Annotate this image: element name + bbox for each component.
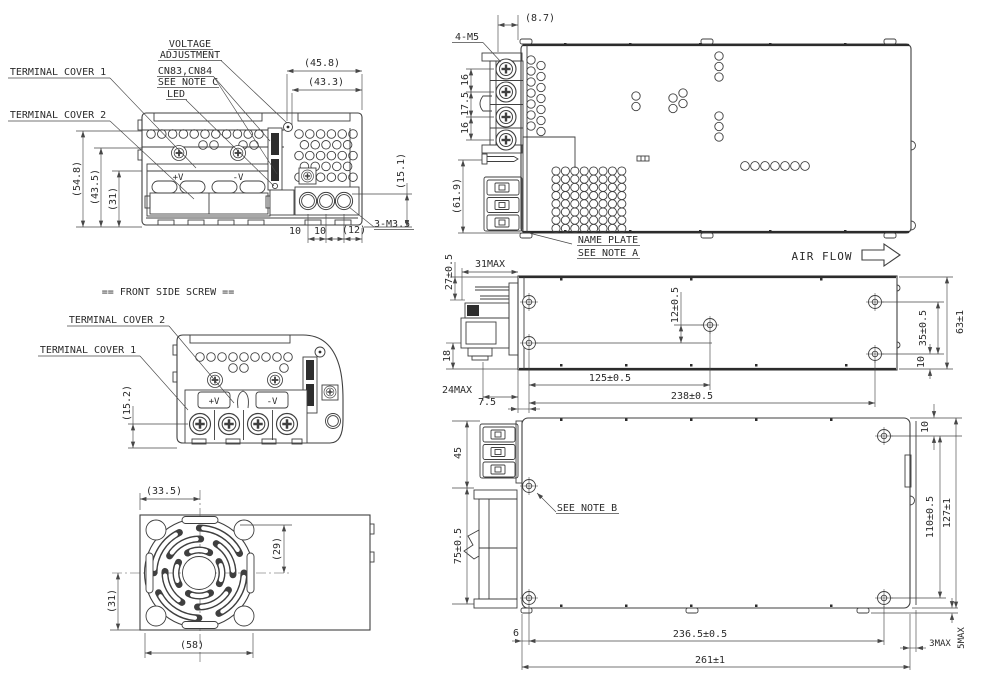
svg-text:NAME PLATE: NAME PLATE [578, 235, 638, 246]
svg-text:(15.2): (15.2) [122, 385, 133, 421]
fan-mount-hole-tr [234, 520, 254, 540]
output-screw-4 [496, 130, 516, 150]
dim-bottom-right-heights: 10 110±0.5 127±1 [890, 404, 962, 608]
dim-fan-center-y: (31) [107, 573, 140, 630]
front-vent-holes-top [147, 130, 264, 139]
svg-text:10: 10 [920, 421, 931, 433]
side-mount-hole-tr [866, 293, 884, 311]
svg-text:CN83,CN84: CN83,CN84 [158, 66, 212, 77]
dim-front-terminal-height: (15.1) [352, 153, 412, 227]
dim-top-terminal-offset: (8.7) [498, 13, 555, 52]
svg-text:3-M3.5: 3-M3.5 [374, 219, 410, 230]
svg-text:(43.5): (43.5) [90, 169, 101, 205]
terminal-screw-4 [277, 414, 298, 435]
svg-text:(54.8): (54.8) [72, 161, 83, 197]
cn83-connector [271, 133, 279, 155]
ground-screw [302, 170, 314, 182]
bottom-din-bracket [464, 490, 517, 608]
screw-view-negative-label: -V [267, 397, 278, 407]
side-mount-hole-center [701, 316, 719, 334]
power-supply-outline-drawing: +V -V VOLTAGE ADJUSTMENT CN83,CN84 SEE N… [0, 0, 1000, 674]
svg-text:16: 16 [460, 74, 471, 86]
top-edge-rivets [564, 43, 847, 233]
screw-view-cover-screw-right [268, 373, 283, 388]
svg-text:(33.5): (33.5) [146, 486, 182, 497]
top-output-terminal-block [480, 53, 523, 153]
svg-text:10: 10 [916, 356, 927, 368]
side-mount-hole-tl [520, 293, 538, 311]
side-mount-hole-bl [520, 334, 538, 352]
fan-view: (33.5) (29) (31) (58) [107, 486, 374, 662]
dim-bottom-left-heights: 45 75±0.5 [452, 421, 480, 604]
front-view: +V -V VOLTAGE ADJUSTMENT CN83,CN84 SEE N… [8, 39, 414, 243]
output-terminal-2 [317, 192, 334, 209]
fan-mount-hole-br [234, 606, 254, 626]
dim-side-connector-depth: 31MAX [462, 259, 518, 300]
bottom-ac-inlet-connector [480, 421, 522, 483]
name-plate-vent-grid [552, 167, 626, 233]
screw-view-ground-screw [324, 386, 336, 398]
dim-front-width-outer: (45.8) [287, 58, 362, 121]
svg-text:110±0.5: 110±0.5 [925, 496, 936, 538]
fan-hub [183, 557, 216, 590]
top-ac-inlet-connector [484, 177, 522, 231]
svg-text:VOLTAGE: VOLTAGE [169, 39, 211, 50]
terminal-screw-2 [219, 414, 240, 435]
output-terminal-3 [335, 192, 352, 209]
dim-side-hole-pitch-mid: 125±0.5 [529, 332, 710, 390]
svg-text:45: 45 [453, 447, 464, 459]
bottom-feet [521, 608, 869, 613]
dim-side-hole-offset: 12±0.5 [536, 287, 712, 343]
svg-text:TERMINAL COVER 1: TERMINAL COVER 1 [10, 67, 106, 78]
top-left-vent-column-b [537, 61, 545, 135]
svg-text:(45.8): (45.8) [304, 58, 340, 69]
svg-text:(43.3): (43.3) [308, 77, 344, 88]
dim-bottom-side-clearance: 3MAX [900, 610, 951, 652]
top-left-vent-column-a [527, 56, 535, 130]
front-vent-holes-row2 [199, 141, 259, 150]
screw-view-title: == FRONT SIDE SCREW == [102, 287, 234, 298]
svg-text:125±0.5: 125±0.5 [589, 373, 631, 384]
svg-text:127±1: 127±1 [942, 498, 953, 528]
dim-fan-width: (58) [145, 633, 253, 658]
svg-text:5MAX: 5MAX [957, 627, 967, 649]
svg-text:(31): (31) [107, 589, 118, 613]
cover-screw-right [231, 146, 246, 161]
svg-text:24MAX: 24MAX [442, 385, 472, 396]
output-screw-2 [496, 82, 516, 102]
svg-text:18: 18 [442, 350, 453, 362]
svg-text:31MAX: 31MAX [475, 259, 505, 270]
screw-view-vent-holes [196, 353, 293, 362]
svg-text:TERMINAL COVER 2: TERMINAL COVER 2 [69, 315, 165, 326]
output-terminal-1 [299, 192, 316, 209]
top-small-slot [637, 156, 649, 161]
svg-text:(31): (31) [108, 187, 119, 211]
dim-fan-center-x: (33.5) [140, 486, 200, 510]
air-flow-label: AIR FLOW [792, 250, 853, 263]
dim-bottom-widths: 6 236.5±0.5 261±1 [512, 606, 910, 670]
dim-front-width-inner: (43.3) [292, 77, 362, 125]
svg-text:LED: LED [167, 89, 185, 100]
svg-text:17.5: 17.5 [460, 92, 471, 116]
svg-text:SEE NOTE C: SEE NOTE C [158, 77, 218, 88]
fan-mount-hole-tl [146, 520, 166, 540]
svg-text:238±0.5: 238±0.5 [671, 391, 713, 402]
air-flow-arrow-icon [862, 244, 900, 266]
svg-text:63±1: 63±1 [955, 310, 966, 334]
technical-drawing-page: +V -V VOLTAGE ADJUSTMENT CN83,CN84 SEE N… [0, 0, 1000, 674]
screw-view-vent-holes-row2 [229, 364, 289, 373]
dim-side-front-offset: 7.5 [478, 352, 540, 413]
svg-text:3MAX: 3MAX [929, 639, 951, 649]
output-screw-1 [496, 59, 516, 79]
side-front-connectors [461, 283, 518, 360]
svg-text:(8.7): (8.7) [525, 13, 555, 24]
svg-text:(29): (29) [272, 537, 283, 561]
svg-text:12±0.5: 12±0.5 [670, 287, 681, 323]
fan-mount-hole-bl [146, 606, 166, 626]
top-body-outline [521, 44, 911, 233]
front-feet-slots [158, 220, 351, 225]
svg-text:ADJUSTMENT: ADJUSTMENT [160, 50, 220, 61]
front-side-screw-view: == FRONT SIDE SCREW == +V -V TERMINAL CO… [38, 287, 343, 448]
svg-text:236.5±0.5: 236.5±0.5 [673, 629, 727, 640]
side-view: 27±0.5 31MAX 18 24MAX 7.5 125±0.5 238±0.… [442, 254, 966, 413]
svg-text:(58): (58) [180, 640, 204, 651]
top-fg-screw [482, 154, 518, 164]
svg-text:261±1: 261±1 [695, 655, 725, 666]
svg-text:35±0.5: 35±0.5 [918, 310, 929, 346]
top-hole-clusters [632, 52, 723, 141]
terminal-screw-3 [248, 414, 269, 435]
svg-text:27±0.5: 27±0.5 [444, 254, 455, 290]
cover-screw-left [172, 146, 187, 161]
dim-screw-height: (15.2) [122, 385, 188, 448]
top-view: (8.7) 4-M5 16 17.5 16 (61.9) NAME PLATE … [452, 13, 916, 266]
bottom-view: SEE NOTE B 45 75±0.5 6 236.5±0.5 261±1 3… [452, 404, 967, 670]
svg-text:(12): (12) [342, 225, 366, 236]
svg-text:16: 16 [460, 122, 471, 134]
terminal-screw-1 [190, 414, 211, 435]
bottom-mount-hole-tl [520, 477, 538, 495]
dim-front-heights: (54.8) (43.5) (31) [72, 131, 142, 227]
svg-text:(15.1): (15.1) [396, 153, 407, 189]
svg-text:6: 6 [513, 628, 519, 639]
side-mount-hole-br [866, 345, 884, 363]
svg-text:SEE NOTE B: SEE NOTE B [557, 503, 617, 514]
svg-text:10: 10 [289, 226, 301, 237]
dim-bottom-foot-clearance: 5MAX [871, 598, 967, 649]
svg-text:7.5: 7.5 [478, 397, 496, 408]
fan-grille [145, 517, 255, 629]
svg-text:TERMINAL COVER 2: TERMINAL COVER 2 [10, 110, 106, 121]
dim-top-terminal-pitches: 16 17.5 16 [460, 69, 494, 140]
callout-name-plate: NAME PLATE SEE NOTE A [529, 233, 640, 259]
terminal-cover-assembly [147, 164, 270, 216]
svg-text:4-M5: 4-M5 [455, 32, 479, 43]
callout-sv-terminal-cover-1: TERMINAL COVER 1 [38, 345, 188, 410]
svg-text:SEE NOTE A: SEE NOTE A [578, 248, 638, 259]
svg-text:75±0.5: 75±0.5 [453, 528, 464, 564]
callout-4-m5: 4-M5 [452, 32, 501, 62]
cn84-connector [271, 159, 279, 181]
callout-see-note-b: SEE NOTE B [537, 493, 619, 514]
screw-view-positive-label: +V [209, 397, 220, 407]
svg-text:TERMINAL COVER 1: TERMINAL COVER 1 [40, 345, 136, 356]
dim-side-right-heights: 35±0.5 63±1 10 [882, 277, 966, 379]
svg-text:(61.9): (61.9) [452, 178, 463, 214]
svg-text:10: 10 [314, 226, 326, 237]
air-flow-annotation: AIR FLOW [792, 244, 900, 266]
dim-top-depth: (61.9) [452, 160, 521, 233]
output-screw-3 [496, 107, 516, 127]
top-vent-row-seven [741, 162, 810, 171]
